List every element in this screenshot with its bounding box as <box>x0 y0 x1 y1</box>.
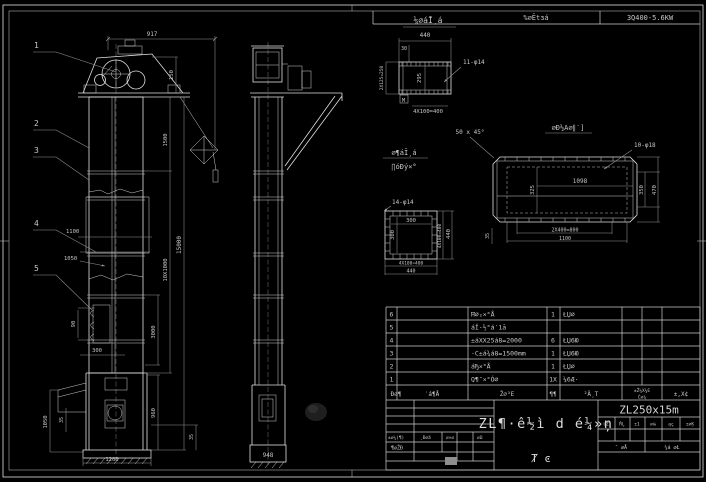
bom-cell: 3 <box>390 350 394 358</box>
balloon-4: 4 <box>34 219 39 228</box>
side-elevation-view: 948 <box>250 42 342 468</box>
dim-1098: 1098 <box>573 178 588 185</box>
tb-right-row: ¼á ⌀Ł <box>664 444 679 451</box>
cad-drawing-canvas: %⌀Ētзá 3Q400-5.6KW <box>0 0 706 482</box>
dim-325: 325 <box>530 185 536 195</box>
bom-cell: ŁЏ⌀ <box>562 363 575 371</box>
detail-inlet-flange: ⌀¶áĪ¸á ∏óĐý×° 14-φ14 300 300 4X100=400 4… <box>383 148 454 275</box>
bom-header-cell: ²Ä¸T <box>584 391 599 398</box>
bom-cell: 1 <box>551 363 555 371</box>
tb-left-label: ¶⌀ŽĐ <box>391 444 403 452</box>
dim-1100: 1100 <box>66 229 79 235</box>
bom-cell: Ħ⌀₂×°Å <box>471 310 495 319</box>
bom-cell: 5 <box>390 324 394 332</box>
bom-cell: ŁЏ⌀ <box>562 311 575 319</box>
bom-cell: 6 <box>551 337 555 345</box>
tb-left-label: ¸Đ⌀ã <box>420 435 431 441</box>
dim-350: 350 <box>639 185 645 195</box>
header-motor-spec: 3Q400-5.6KW <box>627 14 674 22</box>
bom-cell: ¼6Æ· <box>563 376 579 384</box>
bom-header-cell: Ć⌀¼ <box>638 394 646 401</box>
label-m: M <box>402 98 405 104</box>
tb-left-label: ⌀Ω <box>477 435 483 441</box>
dim-440-top: 440 <box>420 32 431 39</box>
bom-cell: 6 <box>390 311 394 319</box>
bom-cell: 4 <box>390 337 394 345</box>
dim-470: 470 <box>652 185 658 195</box>
bom-cell: 1X <box>549 376 557 384</box>
dim-sq-w300: 300 <box>406 218 416 224</box>
tb-right-head: ⌀Ҩ <box>650 423 656 428</box>
bom-header-cell: ±Ž¼X¼E <box>634 386 651 394</box>
dim-917: 917 <box>147 31 158 38</box>
tb-left-label: ±⌀¼(¶) <box>388 435 404 441</box>
balloon-3: 3 <box>34 146 39 155</box>
dim-boot-35: 35 <box>59 417 65 423</box>
detail-base-frame: 50 x 45° ⌀Đ½A⌀∥′] 10-φ18 1098 325 350 47… <box>456 124 660 244</box>
dim-1500: 1500 <box>163 133 169 146</box>
title-block: ±⌀¼(¶) ¸Đ⌀ã ⌀×⌀ ⌀Ω ¶⌀ŽĐ ZL¶·ê½ì d é¼»ņ Ⱦ… <box>386 400 700 470</box>
balloon-2: 2 <box>34 119 39 128</box>
dim-960: 960 <box>151 408 157 418</box>
dim-sections: 10X1000 <box>163 258 169 281</box>
tb-left-label: ⌀×⌀ <box>446 436 454 441</box>
dim-1200: 1200 <box>105 457 118 463</box>
header-mid-label: %⌀Ētзá <box>523 13 548 22</box>
dim-948: 948 <box>263 452 274 459</box>
bom-cell: áĬ·½°á′1ā <box>471 323 506 332</box>
dim-3000: 3000 <box>151 325 157 338</box>
dim-sq-r1: 4X100=400 <box>437 224 443 249</box>
dim-1050: 1050 <box>64 256 77 262</box>
detail-outlet-title: ⅛⌀áĪ¸á <box>414 15 443 25</box>
dim-150: 150 <box>169 70 175 80</box>
bom-header-cell: ′á¶Å <box>425 391 440 398</box>
bom-cell: ŁЏ6Ю <box>562 337 579 345</box>
tb-right-head: ąç <box>668 423 674 428</box>
label-holes-10: 10-φ18 <box>634 142 656 149</box>
chamfer-note: 50 x 45° <box>456 129 485 136</box>
bom-cell: ·C±á¾á8=1500mm <box>471 350 526 358</box>
detail-inlet-title-1: ⌀¶áĪ¸á <box>391 148 416 157</box>
model-number: ZL250x15m <box>619 404 679 417</box>
bom-cell: Q¶″×°Ó⌀ <box>471 375 498 384</box>
dim-sq-b2: 440 <box>406 269 415 275</box>
bom-header-cell: Đ⌀¶ <box>391 391 402 398</box>
label-holes-11: 11-φ14 <box>463 59 485 66</box>
dim-1100-long: 1100 <box>559 236 571 242</box>
dim-sq-r2: 440 <box>446 229 452 239</box>
dim-90: 90 <box>71 321 77 328</box>
tb-right-row: ″ ⌀Å <box>615 444 627 451</box>
dim-30: 30 <box>401 46 407 52</box>
bom-table: 6 Ħ⌀₂×°Å 1 ŁЏ⌀ 5 áĬ·½°á′1ā 4 ±áXX25á8=20… <box>386 307 700 401</box>
bom-header-cell: Ž⌀³E <box>500 390 515 398</box>
bom-cell: 2 <box>390 363 394 371</box>
bom-cell: ±áXX25á8=2000 <box>471 337 522 345</box>
dim-boot-1050: 1050 <box>43 415 49 428</box>
detail-base-title: ⌀Đ½A⌀∥′] <box>551 124 584 132</box>
bom-cell: áЂ×°Å <box>471 362 491 371</box>
balloon-5: 5 <box>34 264 39 273</box>
bom-cell: 1 <box>551 311 555 319</box>
bom-header-cell: ¶¶ <box>549 391 557 398</box>
bom-cell: 1 <box>390 376 394 384</box>
detail-inlet-title-2: ∏óĐý×° <box>391 163 416 171</box>
detail-outlet-flange: ⅛⌀áĪ¸á 440 30 2X125=250 295 11-φ14 M 4X1… <box>379 15 485 115</box>
label-holes-14: 14-φ14 <box>392 199 414 206</box>
dim-right-35: 35 <box>189 434 195 440</box>
tb-right-head: ±⌀Ķ <box>686 422 694 428</box>
bom-cell: ŁЏ6Ю <box>562 350 579 358</box>
drawing-subtitle: Ⱦ ͼ <box>531 452 551 465</box>
dim-4x100-top: 4X100=400 <box>413 109 443 115</box>
drawing-title: ZL¶·ê½ì d é¼»ņ <box>479 416 614 432</box>
dim-left-pitch: 2X125=250 <box>379 66 385 91</box>
dim-35-long: 35 <box>485 233 491 239</box>
signature-mark <box>445 457 457 465</box>
balloon-1: 1 <box>34 41 39 50</box>
dim-300: 300 <box>92 348 102 354</box>
bom-cell: 1 <box>551 350 555 358</box>
bom-header-cell: ±,X¢ <box>674 391 689 398</box>
tb-right-head: ŘĻ <box>619 420 625 428</box>
dim-295: 295 <box>417 73 423 83</box>
dim-sq-b1: 4X100=400 <box>399 261 424 267</box>
tb-right-head: ±1 <box>634 422 640 428</box>
dim-sq-h300: 300 <box>390 230 396 240</box>
dim-2x400: 2X400=800 <box>551 228 578 234</box>
dim-15000: 15000 <box>176 236 183 254</box>
